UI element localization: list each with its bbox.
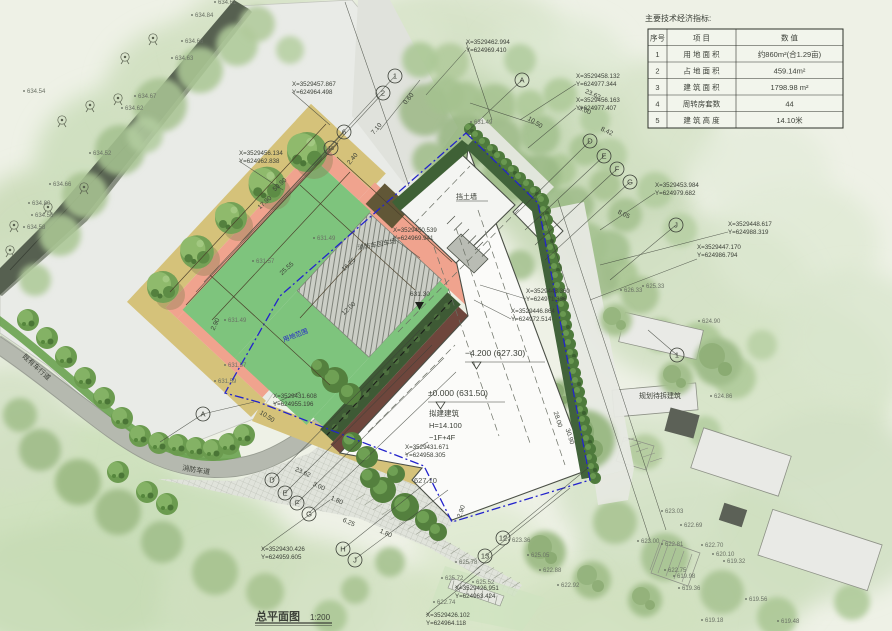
svg-text:G: G	[306, 510, 312, 519]
svg-text:634.80: 634.80	[32, 201, 51, 207]
svg-text:X=3529431.608: X=3529431.608	[273, 393, 317, 400]
svg-text:X=3529462.994: X=3529462.994	[466, 39, 510, 46]
svg-text:625.05: 625.05	[531, 553, 550, 559]
svg-text:Y=624969.941: Y=624969.941	[393, 235, 434, 242]
svg-text:Y=624964.498: Y=624964.498	[292, 89, 333, 96]
svg-text:X=3529430.426: X=3529430.426	[261, 546, 305, 553]
svg-text:631.30: 631.30	[410, 291, 430, 298]
svg-text:Y=624977.344: Y=624977.344	[576, 81, 617, 88]
svg-text:D: D	[269, 476, 275, 485]
svg-text:619.18: 619.18	[705, 618, 724, 624]
svg-text:622.69: 622.69	[684, 523, 703, 529]
svg-text:2: 2	[381, 89, 385, 98]
svg-text:E: E	[601, 152, 606, 161]
svg-text:Y=624971.386: Y=624971.386	[526, 296, 567, 303]
svg-text:3: 3	[655, 83, 659, 92]
svg-text:J: J	[674, 221, 678, 230]
svg-text:5: 5	[655, 116, 659, 125]
svg-text:16: 16	[328, 146, 334, 152]
svg-text:631.57: 631.57	[256, 259, 275, 265]
svg-text:634.66: 634.66	[53, 182, 72, 188]
svg-text:X=3529453.984: X=3529453.984	[655, 182, 699, 189]
svg-text:占 地 面 积: 占 地 面 积	[683, 66, 720, 76]
svg-text:622.81: 622.81	[665, 542, 684, 548]
svg-text:622.74: 622.74	[437, 600, 456, 606]
svg-text:459.14m²: 459.14m²	[774, 67, 806, 76]
svg-text:Y=624972.514: Y=624972.514	[511, 316, 552, 323]
svg-text:主要技术经济指标:: 主要技术经济指标:	[645, 13, 711, 23]
svg-text:A: A	[200, 410, 205, 419]
svg-text:H: H	[340, 545, 345, 554]
svg-text:Y=624958.305: Y=624958.305	[405, 452, 446, 459]
svg-text:623.03: 623.03	[665, 509, 684, 515]
svg-text:X=3529431.671: X=3529431.671	[405, 444, 449, 451]
svg-text:634.62: 634.62	[125, 106, 144, 112]
svg-text:623.00: 623.00	[641, 539, 660, 545]
svg-text:X=3529426.102: X=3529426.102	[426, 612, 470, 619]
svg-text:X=3529450.539: X=3529450.539	[393, 227, 437, 234]
svg-text:14.10米: 14.10米	[776, 115, 803, 125]
svg-text:D: D	[587, 137, 593, 146]
svg-text:E: E	[282, 489, 287, 498]
svg-text:623.36: 623.36	[512, 538, 531, 544]
svg-text:634.52: 634.52	[93, 151, 112, 157]
svg-text:627.10: 627.10	[414, 476, 437, 485]
svg-text:634.66: 634.66	[185, 39, 204, 45]
svg-text:2: 2	[655, 67, 659, 76]
svg-text:12: 12	[499, 534, 507, 543]
svg-text:631.59: 631.59	[218, 379, 237, 385]
svg-text:624.90: 624.90	[702, 319, 721, 325]
svg-text:44: 44	[785, 100, 793, 109]
svg-text:624.86: 624.86	[714, 394, 733, 400]
svg-text:619.56: 619.56	[749, 597, 768, 603]
svg-text:X=3529458.132: X=3529458.132	[576, 73, 620, 80]
svg-text:1: 1	[655, 50, 659, 59]
svg-text:规划待拆建筑: 规划待拆建筑	[639, 391, 681, 400]
svg-text:Y=624962.838: Y=624962.838	[239, 158, 280, 165]
svg-text:634.56: 634.56	[35, 213, 54, 219]
svg-text:634.67: 634.67	[138, 94, 157, 100]
svg-text:622.88: 622.88	[543, 568, 562, 574]
svg-text:Y=624964.118: Y=624964.118	[426, 620, 467, 627]
svg-text:X=3529448.617: X=3529448.617	[728, 221, 772, 228]
svg-text:631.57: 631.57	[228, 363, 247, 369]
svg-text:13: 13	[481, 552, 489, 561]
svg-text:634.58: 634.58	[27, 225, 46, 231]
svg-text:周转房套数: 周转房套数	[683, 99, 721, 109]
svg-text:619.36: 619.36	[682, 586, 701, 592]
svg-text:634.63: 634.63	[175, 56, 194, 62]
svg-text:Y=624963.424: Y=624963.424	[455, 593, 496, 600]
svg-text:634.84: 634.84	[195, 13, 214, 19]
svg-text:X=3529456.134: X=3529456.134	[239, 150, 283, 157]
svg-text:挡土墙: 挡土墙	[456, 192, 477, 201]
svg-text:A: A	[519, 76, 524, 85]
svg-text:1798.98 m²: 1798.98 m²	[771, 83, 809, 92]
svg-text:631.49: 631.49	[228, 318, 247, 324]
svg-text:619.98: 619.98	[677, 574, 696, 580]
svg-text:−1F+4F: −1F+4F	[429, 433, 456, 442]
svg-text:625.52: 625.52	[476, 580, 495, 586]
svg-text:631.49: 631.49	[317, 236, 336, 242]
svg-text:建 筑 面 积: 建 筑 面 积	[683, 82, 720, 92]
svg-text:622.92: 622.92	[561, 583, 580, 589]
svg-text:H=14.100: H=14.100	[429, 421, 462, 430]
svg-text:X=3529457.867: X=3529457.867	[292, 81, 336, 88]
svg-text:Y=624986.794: Y=624986.794	[697, 252, 738, 259]
svg-text:625.33: 625.33	[646, 284, 665, 290]
svg-text:X=3529447.170: X=3529447.170	[697, 244, 741, 251]
svg-text:X=3529448.360: X=3529448.360	[526, 288, 570, 295]
svg-text:625.72: 625.72	[445, 576, 464, 582]
svg-text:Y=624969.410: Y=624969.410	[466, 47, 507, 54]
svg-text:619.48: 619.48	[781, 619, 800, 625]
svg-text:用 地 面 积: 用 地 面 积	[683, 49, 720, 59]
svg-text:Y=624979.682: Y=624979.682	[655, 190, 696, 197]
svg-text:626.33: 626.33	[624, 288, 643, 294]
svg-text:数 值: 数 值	[781, 33, 799, 43]
svg-text:620.10: 620.10	[716, 552, 735, 558]
svg-text:622.70: 622.70	[705, 543, 724, 549]
svg-text:建 筑 高 度: 建 筑 高 度	[683, 115, 720, 125]
svg-text:1:200: 1:200	[310, 613, 331, 622]
svg-text:631.49: 631.49	[474, 120, 493, 126]
svg-text:634.54: 634.54	[27, 89, 46, 95]
svg-text:J: J	[353, 556, 357, 565]
svg-text:总平面图: 总平面图	[256, 609, 300, 623]
svg-text:Y=624959.605: Y=624959.605	[261, 554, 302, 561]
svg-text:序号: 序号	[650, 33, 665, 43]
svg-text:1: 1	[675, 351, 679, 360]
svg-text:4: 4	[655, 100, 659, 109]
svg-text:F: F	[295, 499, 300, 508]
svg-text:X=3529446.864: X=3529446.864	[511, 308, 555, 315]
svg-text:X=3529426.951: X=3529426.951	[455, 585, 499, 592]
svg-text:625.78: 625.78	[459, 560, 478, 566]
svg-text:拟建建筑: 拟建建筑	[429, 408, 459, 418]
svg-text:634.61: 634.61	[218, 0, 237, 6]
svg-text:1: 1	[393, 72, 397, 81]
svg-text:−4.200 (627.30): −4.200 (627.30)	[465, 348, 525, 358]
svg-text:约860m²(合1.29亩): 约860m²(合1.29亩)	[758, 49, 822, 59]
svg-text:G: G	[627, 178, 633, 187]
svg-text:619.32: 619.32	[727, 559, 746, 565]
svg-text:F: F	[615, 165, 620, 174]
svg-text:±0.000 (631.50): ±0.000 (631.50)	[428, 388, 488, 398]
svg-text:6: 6	[342, 128, 346, 137]
svg-text:Y=624988.319: Y=624988.319	[728, 229, 769, 236]
svg-text:Y=624955.196: Y=624955.196	[273, 401, 314, 408]
svg-text:项 目: 项 目	[693, 34, 710, 43]
